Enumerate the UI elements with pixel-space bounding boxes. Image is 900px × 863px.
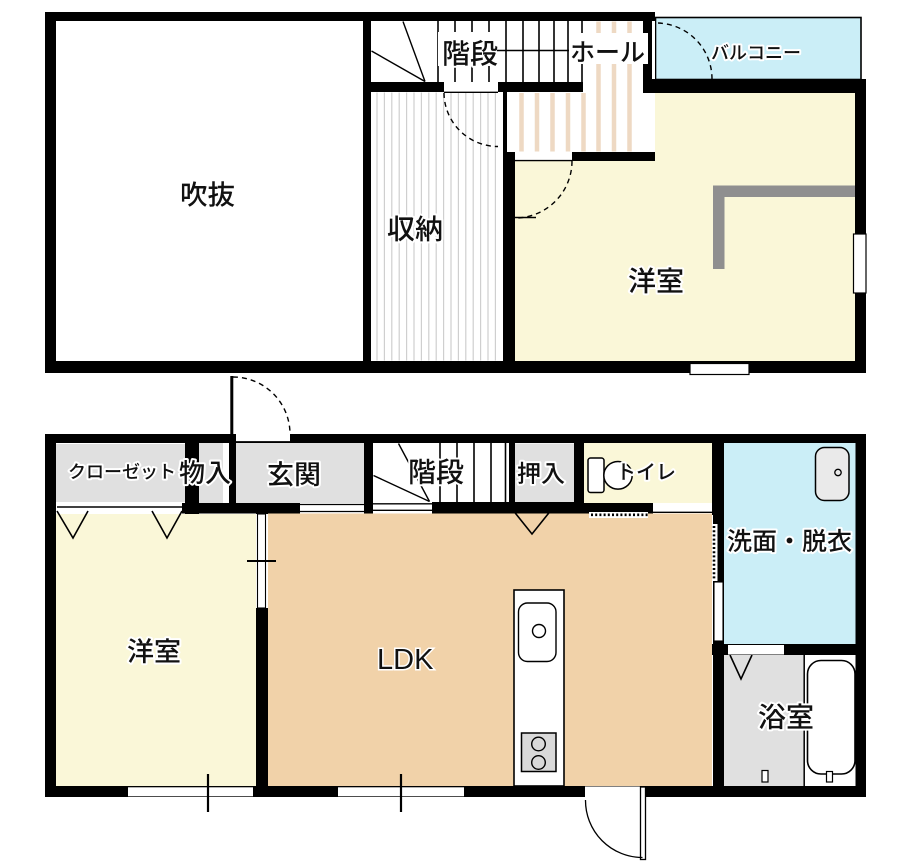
svg-text:LDK: LDK	[377, 644, 434, 676]
